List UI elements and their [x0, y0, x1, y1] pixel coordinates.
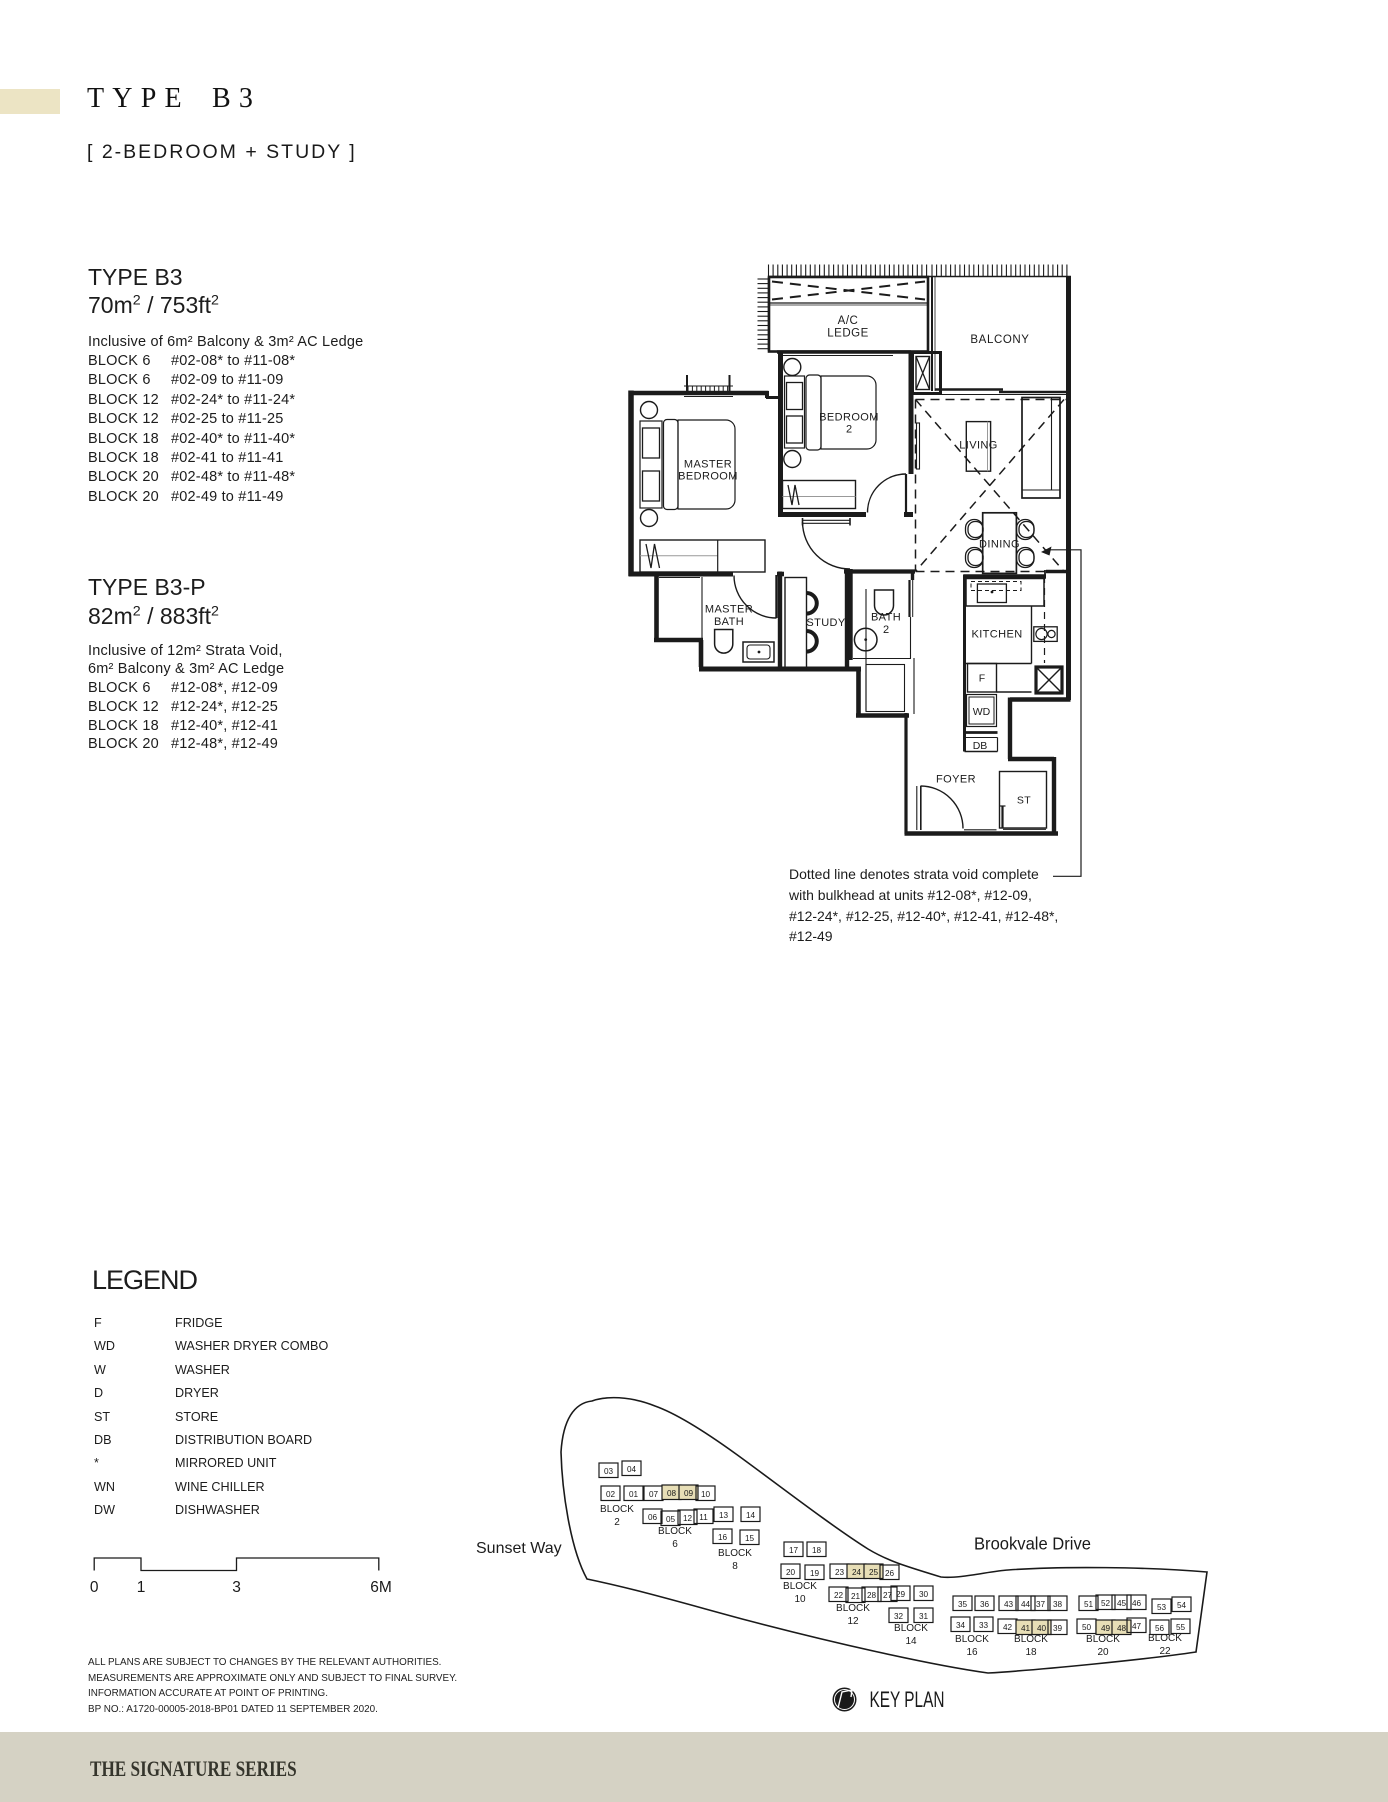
- svg-text:LEDGE: LEDGE: [827, 328, 869, 340]
- svg-text:18: 18: [1025, 1647, 1037, 1658]
- svg-text:36: 36: [980, 1600, 990, 1609]
- svg-text:14: 14: [746, 1511, 756, 1520]
- svg-text:35: 35: [958, 1600, 968, 1609]
- svg-text:MASTER: MASTER: [705, 604, 753, 616]
- svg-text:41: 41: [1021, 1624, 1031, 1633]
- svg-text:2: 2: [846, 424, 852, 436]
- svg-text:48: 48: [1117, 1624, 1127, 1633]
- svg-text:40: 40: [1037, 1624, 1047, 1633]
- svg-text:25: 25: [869, 1568, 879, 1577]
- svg-text:BLOCK: BLOCK: [658, 1526, 692, 1537]
- svg-text:BLOCK: BLOCK: [600, 1504, 634, 1515]
- svg-text:26: 26: [885, 1569, 895, 1578]
- svg-text:ST: ST: [1017, 795, 1031, 807]
- svg-text:BLOCK: BLOCK: [783, 1581, 817, 1592]
- svg-text:3: 3: [232, 1579, 241, 1596]
- svg-text:FOYER: FOYER: [936, 774, 976, 786]
- svg-text:8: 8: [732, 1561, 738, 1572]
- svg-text:49: 49: [1101, 1624, 1111, 1633]
- svg-text:12: 12: [683, 1514, 693, 1523]
- svg-text:KITCHEN: KITCHEN: [971, 629, 1022, 641]
- svg-text:10: 10: [794, 1594, 806, 1605]
- svg-text:09: 09: [684, 1489, 694, 1498]
- svg-text:38: 38: [1053, 1600, 1063, 1609]
- svg-text:31: 31: [919, 1612, 929, 1621]
- svg-text:DB: DB: [973, 740, 988, 752]
- svg-text:18: 18: [812, 1546, 822, 1555]
- svg-text:KEY PLAN: KEY PLAN: [870, 1687, 945, 1712]
- svg-text:BLOCK: BLOCK: [836, 1603, 870, 1614]
- svg-text:02: 02: [606, 1490, 616, 1499]
- svg-text:50: 50: [1082, 1623, 1092, 1632]
- svg-text:6M: 6M: [370, 1579, 392, 1596]
- svg-text:20: 20: [786, 1568, 796, 1577]
- svg-text:F: F: [979, 673, 985, 685]
- svg-text:12: 12: [847, 1616, 859, 1627]
- svg-text:BLOCK: BLOCK: [894, 1623, 928, 1634]
- svg-text:44: 44: [1021, 1600, 1031, 1609]
- svg-text:28: 28: [867, 1591, 877, 1600]
- svg-text:2: 2: [614, 1517, 620, 1528]
- svg-text:33: 33: [979, 1621, 989, 1630]
- svg-text:53: 53: [1157, 1603, 1167, 1612]
- svg-text:46: 46: [1132, 1599, 1142, 1608]
- svg-text:LIVING: LIVING: [959, 440, 997, 452]
- svg-text:BLOCK: BLOCK: [1148, 1633, 1182, 1644]
- svg-text:0: 0: [90, 1579, 99, 1596]
- svg-text:43: 43: [1004, 1600, 1014, 1609]
- svg-text:03: 03: [604, 1467, 614, 1476]
- svg-text:16: 16: [966, 1647, 978, 1658]
- svg-text:51: 51: [1084, 1600, 1094, 1609]
- svg-text:05: 05: [666, 1515, 676, 1524]
- svg-text:16: 16: [718, 1533, 728, 1542]
- svg-text:BLOCK: BLOCK: [1014, 1634, 1048, 1645]
- svg-text:34: 34: [956, 1621, 966, 1630]
- svg-text:1: 1: [137, 1579, 146, 1596]
- svg-text:32: 32: [894, 1612, 904, 1621]
- svg-text:45: 45: [1117, 1599, 1127, 1608]
- svg-text:BLOCK: BLOCK: [955, 1634, 989, 1645]
- svg-text:22: 22: [834, 1591, 844, 1600]
- svg-text:6: 6: [672, 1539, 678, 1550]
- svg-text:BLOCK: BLOCK: [718, 1548, 752, 1559]
- svg-text:23: 23: [835, 1568, 845, 1577]
- svg-text:13: 13: [719, 1511, 729, 1520]
- svg-text:2: 2: [883, 624, 889, 636]
- svg-text:BEDROOM: BEDROOM: [678, 471, 738, 483]
- svg-text:STUDY: STUDY: [806, 617, 846, 629]
- svg-text:52: 52: [1101, 1599, 1111, 1608]
- svg-text:30: 30: [919, 1590, 929, 1599]
- svg-text:BALCONY: BALCONY: [970, 334, 1029, 346]
- svg-text:29: 29: [896, 1590, 906, 1599]
- svg-text:56: 56: [1155, 1624, 1165, 1633]
- svg-text:10: 10: [701, 1490, 711, 1499]
- svg-text:15: 15: [745, 1534, 755, 1543]
- svg-text:01: 01: [629, 1490, 639, 1499]
- svg-text:37: 37: [1036, 1600, 1046, 1609]
- svg-text:39: 39: [1053, 1624, 1063, 1633]
- svg-text:55: 55: [1176, 1623, 1186, 1632]
- svg-text:17: 17: [789, 1546, 799, 1555]
- svg-text:54: 54: [1177, 1601, 1187, 1610]
- svg-text:47: 47: [1132, 1622, 1142, 1631]
- svg-text:21: 21: [851, 1592, 861, 1601]
- svg-text:04: 04: [627, 1465, 637, 1474]
- svg-text:07: 07: [649, 1490, 659, 1499]
- svg-text:14: 14: [905, 1636, 917, 1647]
- svg-text:19: 19: [810, 1569, 820, 1578]
- svg-text:24: 24: [852, 1568, 862, 1577]
- svg-text:22: 22: [1159, 1646, 1171, 1657]
- svg-text:08: 08: [667, 1489, 677, 1498]
- svg-text:A/C: A/C: [838, 315, 859, 327]
- svg-text:BLOCK: BLOCK: [1086, 1634, 1120, 1645]
- svg-text:BATH: BATH: [871, 612, 901, 624]
- svg-text:MASTER: MASTER: [684, 459, 732, 471]
- svg-text:Brookvale Drive: Brookvale Drive: [974, 1534, 1091, 1554]
- svg-text:06: 06: [648, 1513, 658, 1522]
- svg-text:DINING: DINING: [979, 539, 1020, 551]
- svg-text:BATH: BATH: [714, 616, 744, 628]
- svg-text:20: 20: [1097, 1647, 1109, 1658]
- svg-text:42: 42: [1003, 1623, 1013, 1632]
- svg-text:11: 11: [699, 1513, 708, 1522]
- svg-text:WD: WD: [973, 706, 991, 718]
- svg-text:BEDROOM: BEDROOM: [819, 412, 879, 424]
